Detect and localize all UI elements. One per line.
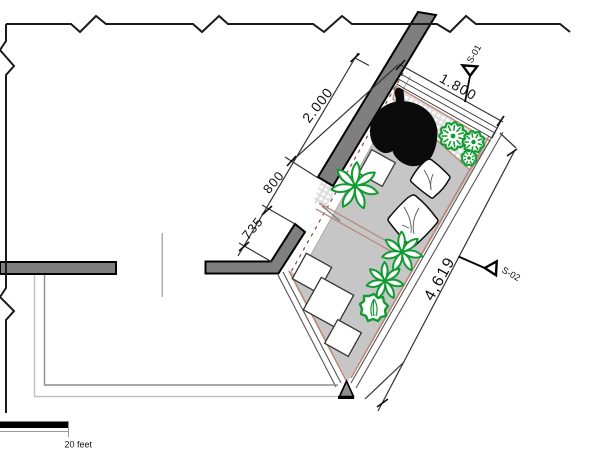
svg-text:S-02: S-02 [500,265,522,283]
svg-text:4,619: 4,619 [421,254,459,304]
svg-text:20 feet: 20 feet [65,440,93,450]
svg-text:735: 735 [239,214,266,243]
svg-text:800: 800 [260,168,287,197]
svg-text:2.000: 2.000 [299,84,336,125]
svg-text:S-01: S-01 [465,43,483,65]
